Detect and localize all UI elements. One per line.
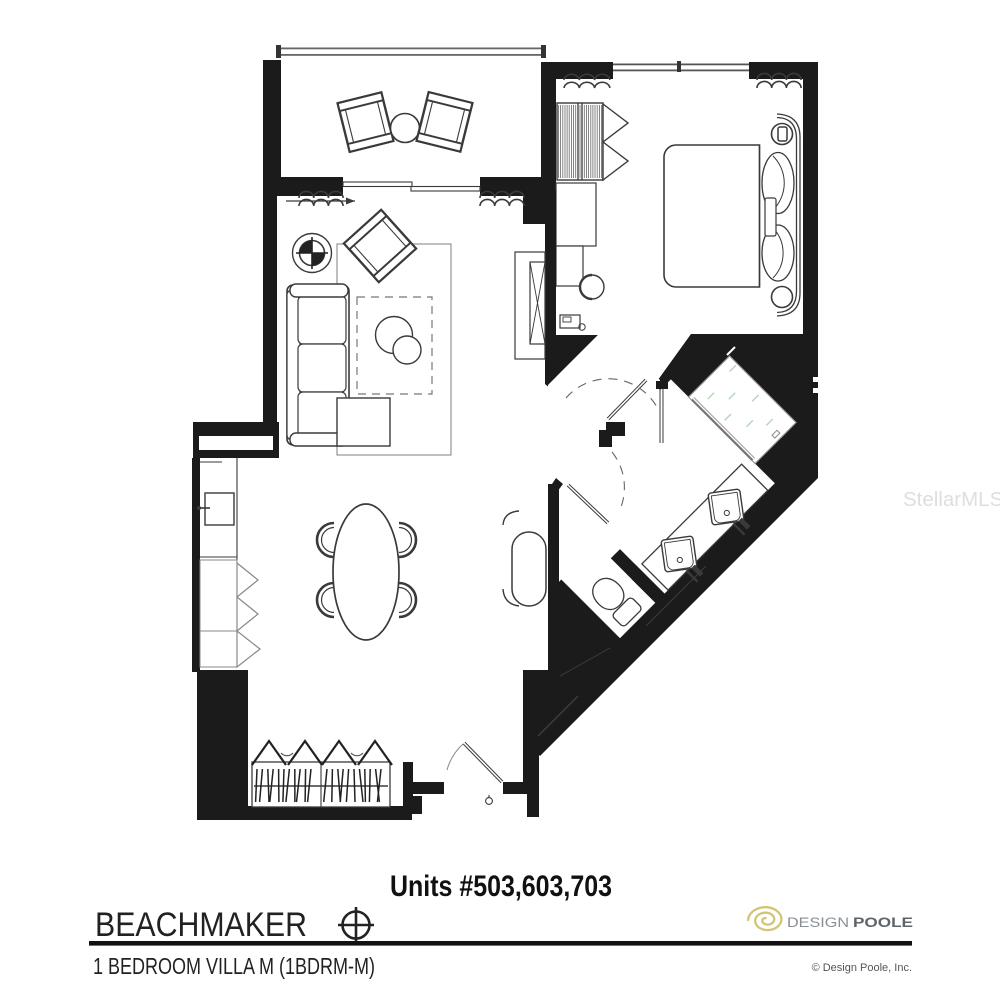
svg-text:1 BEDROOM VILLA M (1BDRM-M): 1 BEDROOM VILLA M (1BDRM-M) <box>93 953 375 979</box>
svg-text:DESIGN: DESIGN <box>787 915 849 930</box>
svg-text:POOLE: POOLE <box>853 915 913 930</box>
svg-text:© Design Poole, Inc.: © Design Poole, Inc. <box>812 962 912 974</box>
svg-text:StellarMLS: StellarMLS <box>903 488 1000 511</box>
svg-text:Units #503,603,703: Units #503,603,703 <box>390 870 612 903</box>
svg-text:BEACHMAKER: BEACHMAKER <box>95 906 307 944</box>
